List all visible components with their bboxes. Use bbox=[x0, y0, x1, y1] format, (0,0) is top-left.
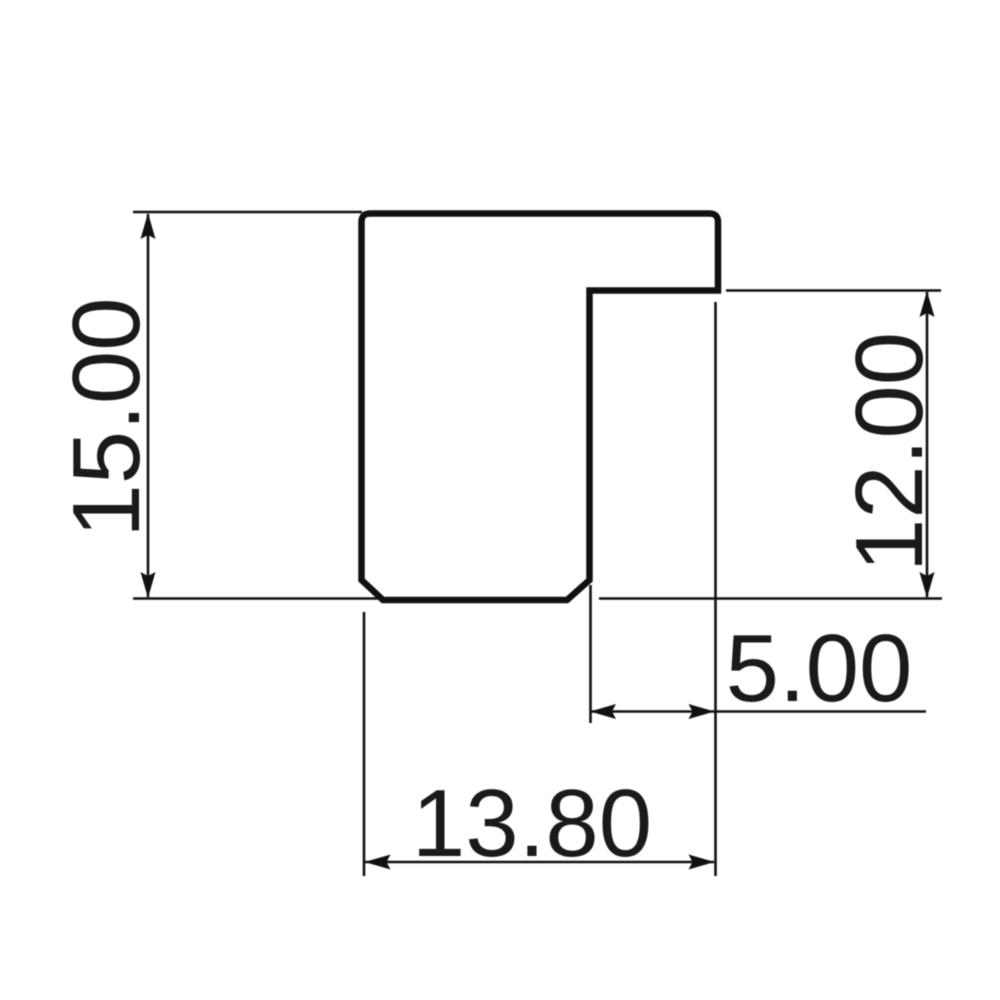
svg-text:5.00: 5.00 bbox=[726, 615, 913, 722]
svg-text:13.80: 13.80 bbox=[412, 770, 652, 877]
svg-text:12.00: 12.00 bbox=[836, 332, 943, 572]
svg-text:15.00: 15.00 bbox=[53, 297, 160, 537]
